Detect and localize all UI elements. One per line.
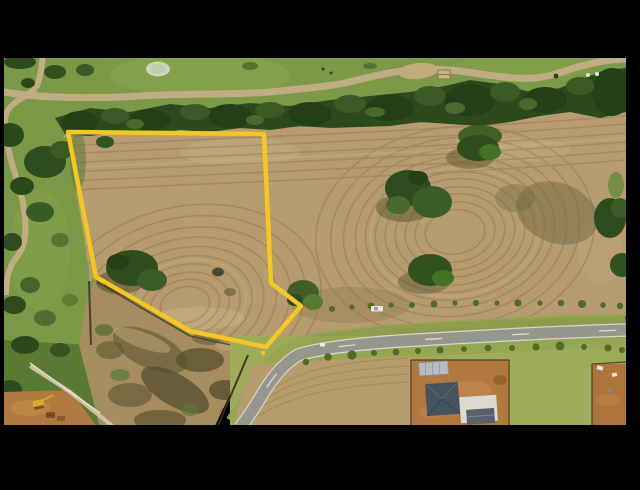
house-roof — [425, 382, 460, 416]
small-bush — [212, 268, 224, 277]
letterbox-right — [626, 0, 640, 490]
street-sign — [320, 343, 325, 347]
park-shelter — [438, 70, 450, 79]
letterbox-bottom — [0, 425, 640, 490]
putting-green — [146, 62, 170, 77]
letterbox-top — [0, 0, 640, 58]
shed-roof — [419, 361, 449, 376]
house-under-construction — [459, 395, 498, 425]
aerial-photo — [4, 58, 626, 425]
screenshot-canvas — [0, 0, 640, 490]
boundary-marker — [261, 351, 265, 355]
